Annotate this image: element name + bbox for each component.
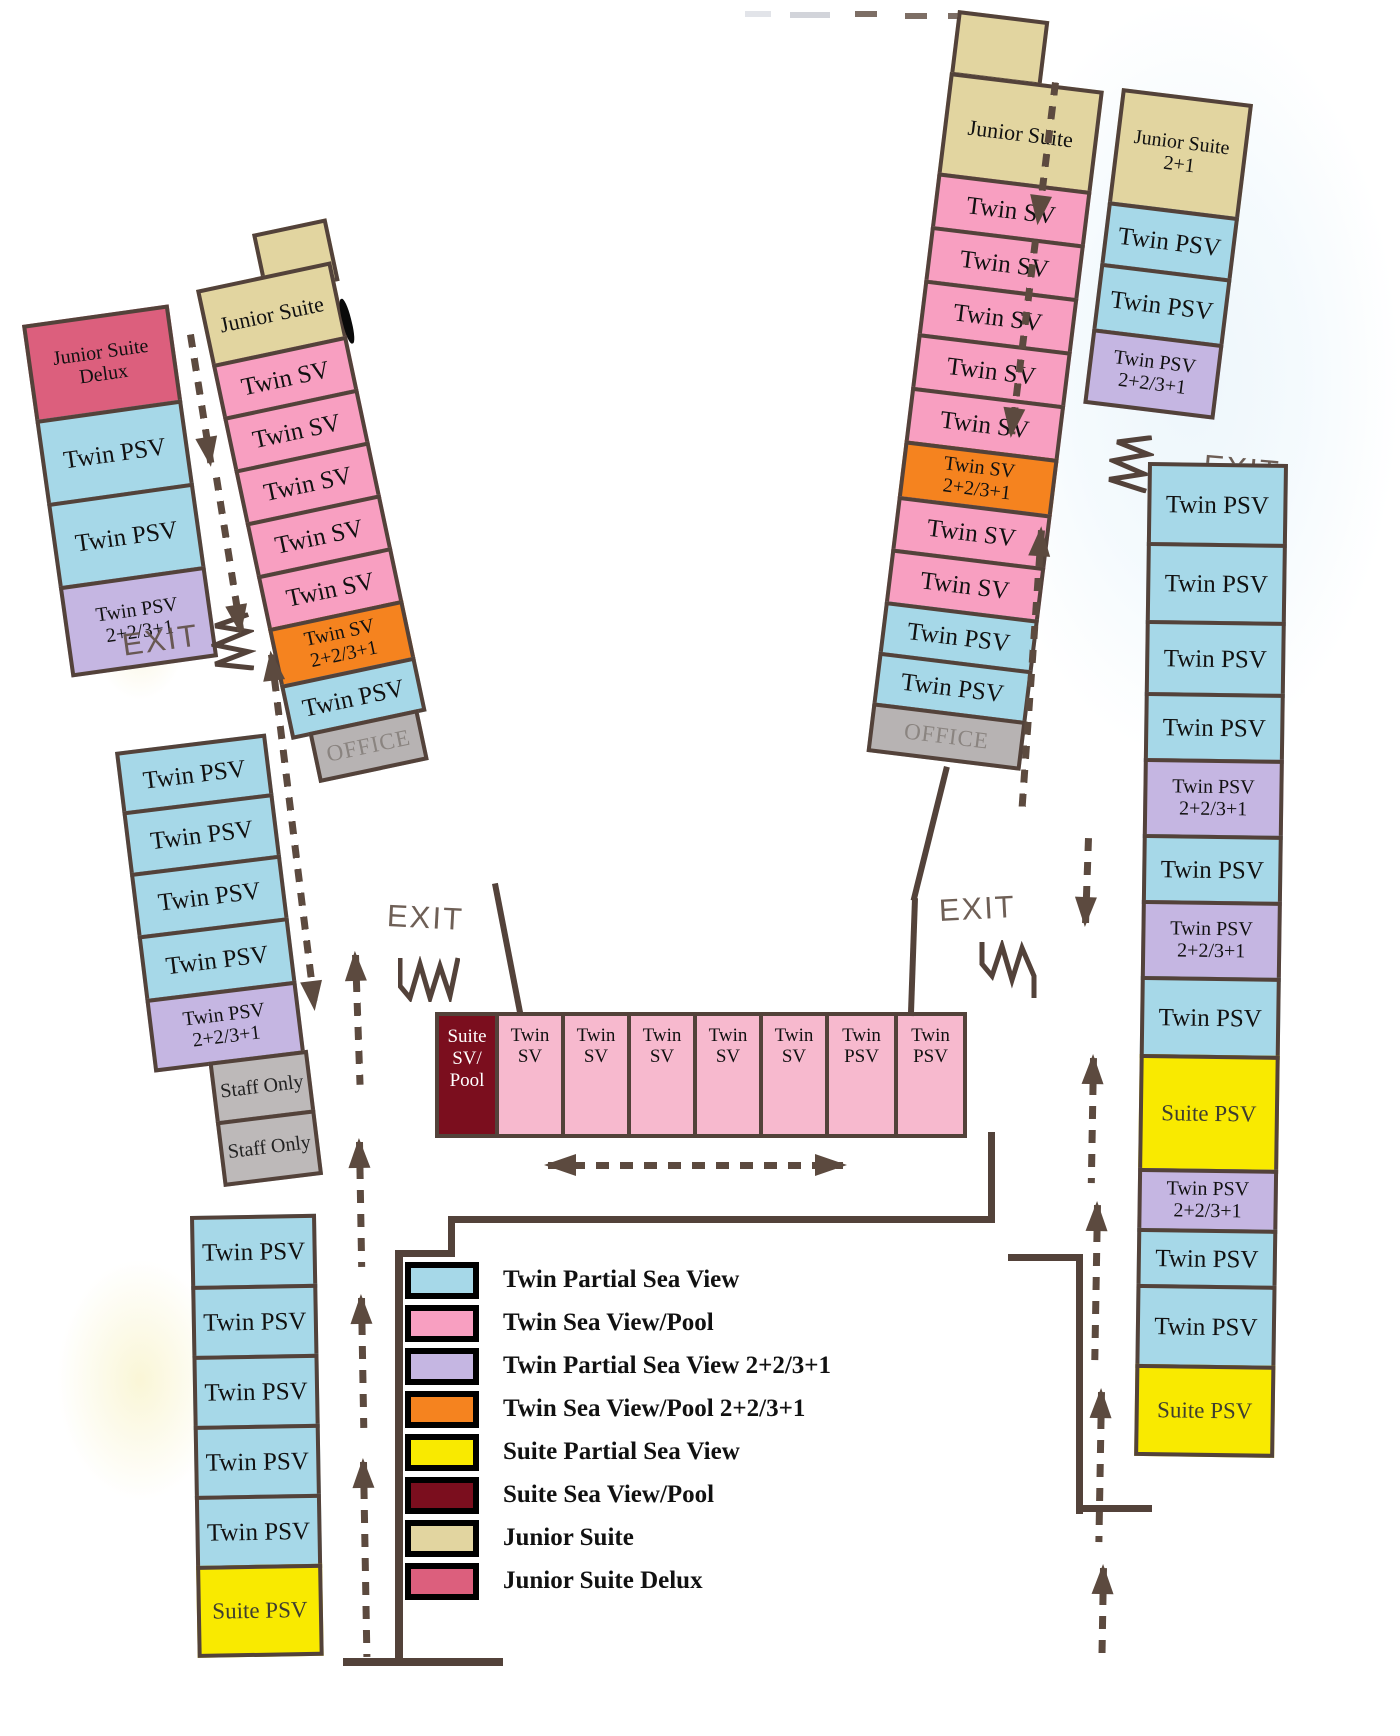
legend-row: Twin Sea View/Pool 2+2/3+1 [405, 1391, 831, 1427]
room-twin-psv: Twin PSV [1142, 834, 1283, 906]
left-wing-bottom-column: Twin PSVTwin PSVTwin PSVTwin PSVTwin PSV… [190, 1214, 324, 1658]
corridor-arrow [213, 477, 244, 631]
room-twin-psv: Twin PSV [194, 1424, 321, 1500]
right-wing-inner-bottom-column: Twin PSVTwin PSVTwin PSVTwin PSVTwin PSV… [1134, 462, 1288, 1458]
floor-plan-page: { "colors": { "twin_psv": "#A6D8E8", "tw… [0, 0, 1400, 1736]
room-twin-psv: Twin PSV [1146, 542, 1287, 626]
wall [395, 1250, 403, 1665]
room-twin-psv: Twin PSV [1145, 620, 1286, 698]
legend-label: Junior Suite [503, 1524, 634, 1552]
room-twin-psv: Twin PSV [190, 1214, 317, 1290]
legend-row: Junior Suite [405, 1520, 831, 1556]
corridor-arrow [352, 955, 364, 1085]
middle-row: SuiteSV/PoolTwinSVTwinSVTwinSVTwinSVTwin… [435, 1012, 967, 1138]
corridor-arrow [1098, 1568, 1107, 1658]
legend-swatch-suite_psv [405, 1434, 479, 1471]
room-twin-psv: Twin PSV [1135, 1284, 1276, 1370]
room-twin-psv: Twin PSV [191, 1284, 318, 1360]
wall [1008, 1254, 1082, 1261]
legend-row: Suite Partial Sea View [405, 1434, 831, 1470]
legend-swatch-junior_suite_delux [405, 1563, 479, 1600]
room-twin-psv-2-2-3-1: Twin PSV2+2/3+1 [1083, 328, 1223, 420]
legend-label: Suite Sea View/Pool [503, 1481, 714, 1509]
legend-swatch-twin_sv [405, 1305, 479, 1342]
legend-swatch-suite_sv_pool [405, 1477, 479, 1514]
room-twin-sv: TwinSV [627, 1012, 697, 1138]
legend-row: Twin Sea View/Pool [405, 1305, 831, 1341]
room-twin-psv: Twin PSV [1140, 976, 1281, 1060]
legend: Twin Partial Sea ViewTwin Sea View/PoolT… [405, 1262, 831, 1606]
room-twin-psv: Twin PSV [192, 1354, 319, 1430]
corridor-arrow [1088, 1058, 1097, 1183]
room-twin-psv: TwinPSV [825, 1012, 898, 1138]
corridor-arrow [358, 1298, 367, 1428]
legend-row: Junior Suite Delux [405, 1563, 831, 1599]
room-suite-psv: Suite PSV [1138, 1054, 1280, 1174]
door-zigzag-right-central [978, 940, 1038, 1002]
right-wing-inner-top-column: Junior Suite2+1Twin PSVTwin PSVTwin PSV2… [1083, 88, 1253, 420]
wall [911, 766, 950, 901]
room-twin-psv-2-2-3-1: Twin PSV2+2/3+1 [1137, 1168, 1278, 1234]
legend-row: Suite Sea View/Pool [405, 1477, 831, 1513]
room-staff-only: Staff Only [216, 1109, 323, 1187]
exit-label-left-central: EXIT [386, 898, 465, 938]
corridor-arrow [1091, 1205, 1101, 1360]
corridor-arrow [356, 1142, 365, 1267]
scan-dash [905, 13, 927, 19]
room-twin-sv: TwinSV [693, 1012, 763, 1138]
room-junior-suite-2-1: Junior Suite2+1 [1108, 88, 1253, 221]
right-wing-outer-column: Junior SuiteTwin SVTwin SVTwin SVTwin SV… [867, 72, 1104, 771]
room-twin-psv: Twin PSV [1144, 692, 1285, 764]
wall [395, 1250, 455, 1257]
wall [492, 883, 523, 1014]
room-twin-psv: Twin PSV [1136, 1228, 1277, 1290]
room-twin-psv-2-2-3-1: Twin PSV2+2/3+1 [1143, 758, 1284, 840]
corridor-arrow [360, 1462, 370, 1657]
room-suite-psv: Suite PSV [196, 1564, 324, 1658]
legend-label: Twin Partial Sea View [503, 1266, 739, 1294]
wall [908, 898, 918, 1016]
door-zigzag-left-central [398, 956, 460, 1002]
wall [1076, 1254, 1083, 1514]
legend-swatch-twin_psv [405, 1262, 479, 1299]
legend-row: Twin Partial Sea View [405, 1262, 831, 1298]
corridor-arrow-horizontal [548, 1162, 843, 1169]
left-wing-inner-column: Junior SuiteTwin SVTwin SVTwin SVTwin SV… [196, 261, 437, 787]
room-suite-sv-pool: SuiteSV/Pool [435, 1012, 499, 1138]
room-twin-sv: TwinSV [561, 1012, 631, 1138]
legend-swatch-twin_sv_plus [405, 1391, 479, 1428]
wall [343, 1658, 503, 1666]
wall [1076, 1505, 1152, 1512]
room-twin-psv: Twin PSV [195, 1494, 322, 1570]
room-twin-sv: TwinSV [495, 1012, 565, 1138]
corridor-arrow [1095, 1392, 1105, 1542]
legend-label: Suite Partial Sea View [503, 1438, 740, 1466]
legend-label: Junior Suite Delux [503, 1567, 703, 1595]
scan-dash [790, 12, 830, 18]
room-twin-sv: TwinSV [759, 1012, 829, 1138]
scan-dash [745, 11, 771, 17]
room-twin-psv-2-2-3-1: Twin PSV2+2/3+1 [1141, 900, 1282, 982]
legend-swatch-junior_suite [405, 1520, 479, 1557]
legend-label: Twin Sea View/Pool [503, 1309, 714, 1337]
legend-swatch-twin_psv_plus [405, 1348, 479, 1385]
wall [988, 1132, 995, 1222]
room-suite-psv: Suite PSV [1134, 1364, 1275, 1458]
scan-dash [855, 11, 877, 17]
wall [450, 1216, 995, 1223]
room-twin-psv: Twin PSV [1147, 462, 1288, 548]
corridor-arrow [1082, 838, 1092, 923]
legend-row: Twin Partial Sea View 2+2/3+1 [405, 1348, 831, 1384]
exit-label-right-central: EXIT [938, 889, 1017, 929]
legend-label: Twin Sea View/Pool 2+2/3+1 [503, 1395, 805, 1423]
legend-label: Twin Partial Sea View 2+2/3+1 [503, 1352, 831, 1380]
room-twin-psv: TwinPSV [894, 1012, 967, 1138]
